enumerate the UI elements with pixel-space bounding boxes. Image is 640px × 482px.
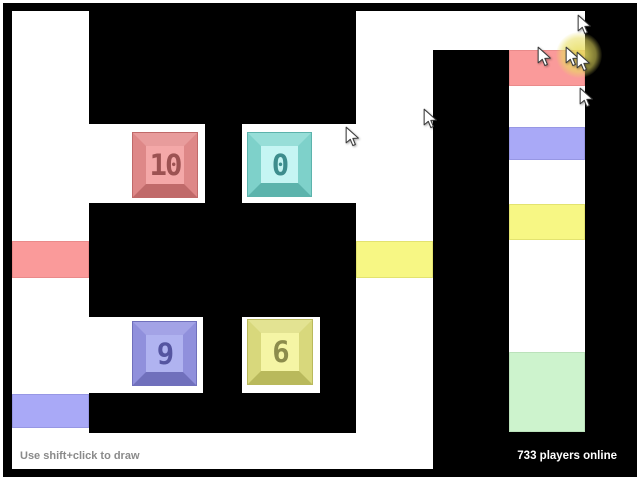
player-cursor-icon bbox=[345, 126, 360, 148]
maze-button-label: 10 bbox=[133, 133, 197, 197]
draw-hint-text: Use shift+click to draw bbox=[20, 450, 140, 462]
door-red-left bbox=[12, 241, 89, 278]
players-online-count: 733 players online bbox=[517, 450, 617, 462]
floor-top-area bbox=[356, 11, 585, 50]
door-yellow-right bbox=[509, 204, 585, 240]
player-cursor-icon bbox=[576, 51, 591, 73]
player-cursor-icon bbox=[577, 14, 592, 36]
door-yellow-mid bbox=[356, 241, 433, 278]
player-cursor-icon bbox=[537, 46, 552, 68]
player-cursor-icon bbox=[579, 87, 594, 109]
maze-button-label: 0 bbox=[248, 133, 311, 196]
maze-button-label: 9 bbox=[133, 322, 196, 385]
maze-button-10[interactable]: 10 bbox=[133, 133, 197, 197]
player-cursor-icon bbox=[423, 108, 438, 130]
door-green-right bbox=[509, 352, 585, 432]
maze-button-0[interactable]: 0 bbox=[248, 133, 311, 196]
maze-button-6[interactable]: 6 bbox=[248, 320, 312, 384]
door-blue-right bbox=[509, 127, 585, 160]
door-blue-left bbox=[12, 394, 89, 428]
game-canvas[interactable]: 10096 Use shift+click to draw 733 player… bbox=[0, 0, 640, 482]
maze-button-label: 6 bbox=[248, 320, 312, 384]
maze-button-9[interactable]: 9 bbox=[133, 322, 196, 385]
